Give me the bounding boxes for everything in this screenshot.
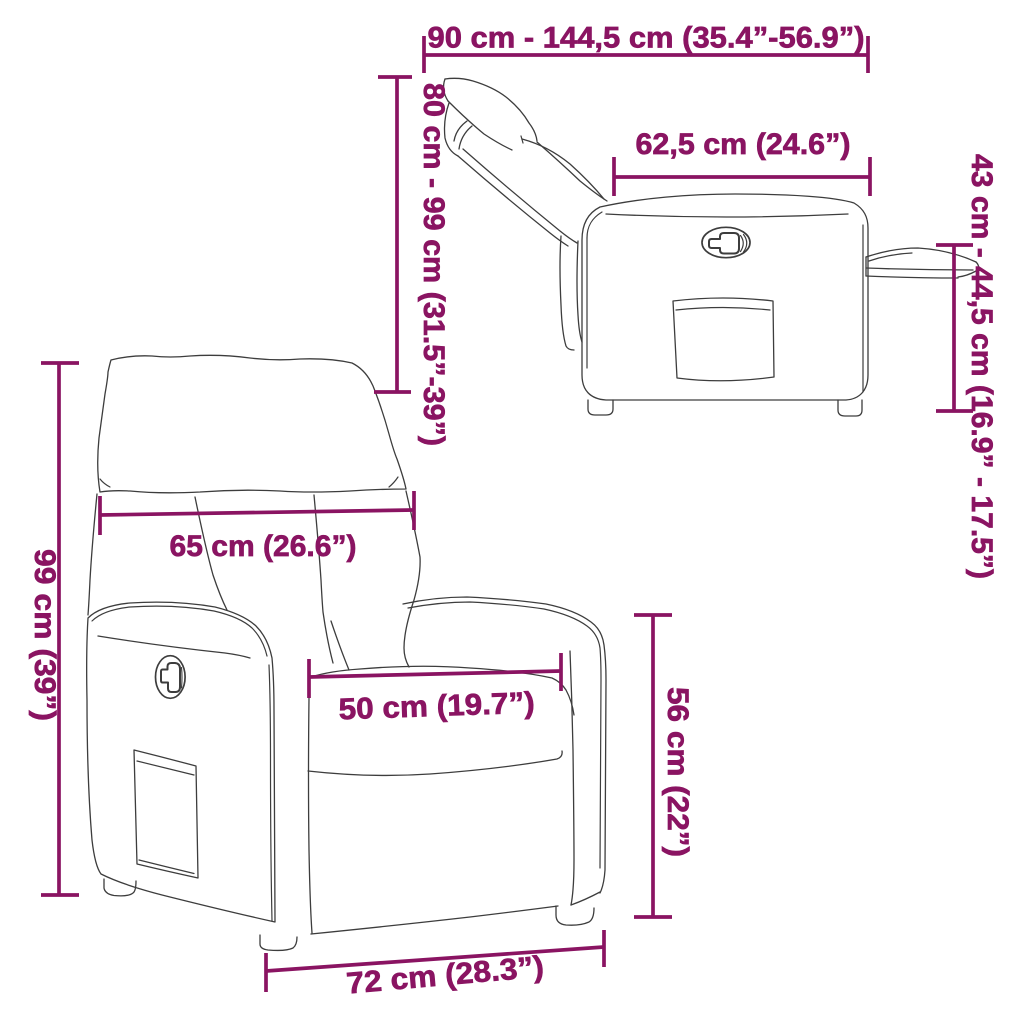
svg-text:90 cm - 144,5 cm (35.4”-56.9”): 90 cm - 144,5 cm (35.4”-56.9”) [428,22,865,55]
svg-text:80 cm - 99 cm (31.5”-39”): 80 cm - 99 cm (31.5”-39”) [417,83,450,446]
svg-text:99 cm (39”): 99 cm (39”) [28,549,61,721]
svg-text:50 cm (19.7”): 50 cm (19.7”) [338,687,535,727]
svg-text:56 cm (22”): 56 cm (22”) [661,687,694,857]
svg-text:43 cm - 44,5 cm (16.9” - 17.5”: 43 cm - 44,5 cm (16.9” - 17.5”) [965,154,998,579]
svg-text:65 cm (26.6”): 65 cm (26.6”) [170,530,357,563]
svg-text:62,5 cm (24.6”): 62,5 cm (24.6”) [636,128,851,161]
